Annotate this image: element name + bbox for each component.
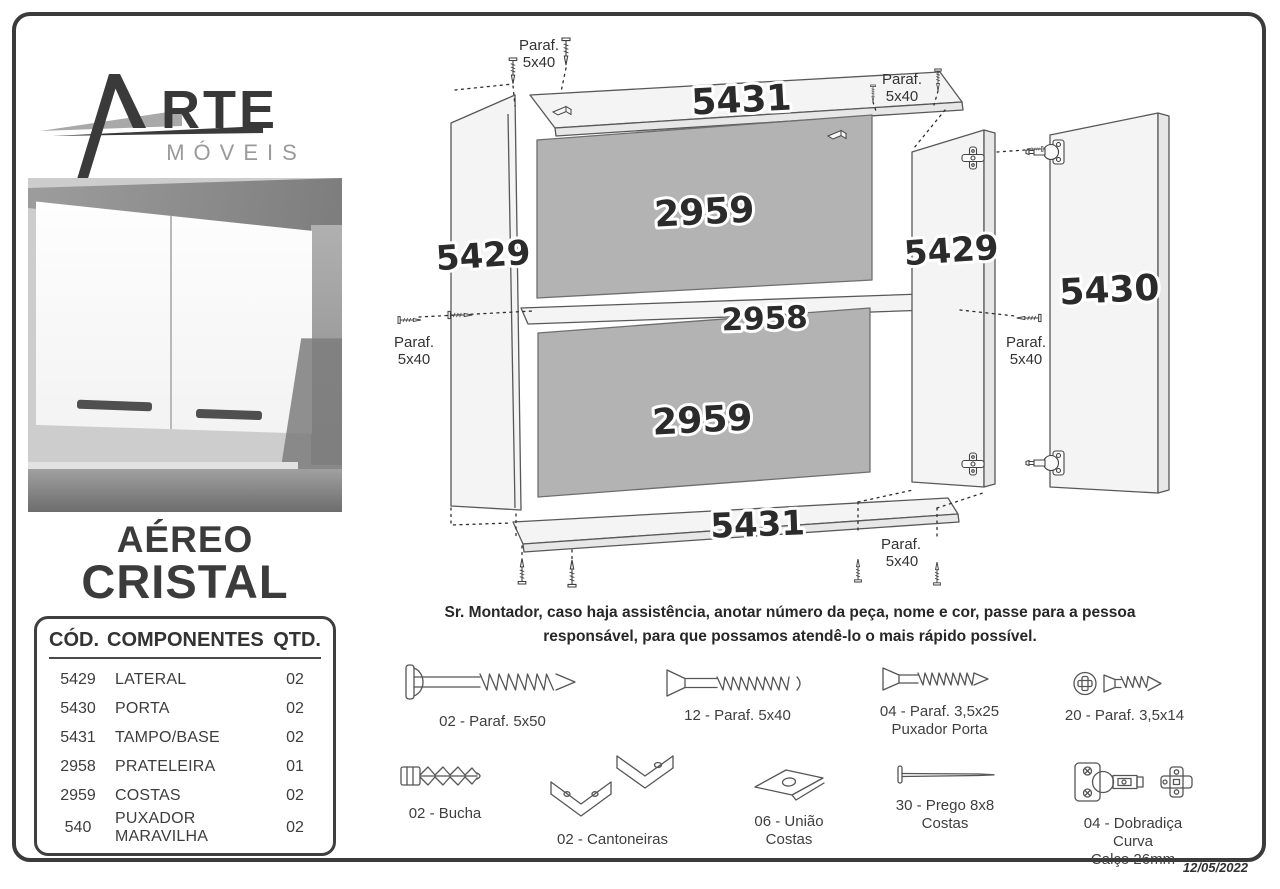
screw-note: 5x40 — [398, 351, 431, 368]
hardware-label-line2: Costas — [890, 815, 1000, 833]
brand-subtitle: MÓVEIS — [166, 140, 306, 165]
brand-wordmark-rest: RTE — [161, 80, 278, 140]
hardware-label-line2: Calço 26mm — [1068, 851, 1198, 869]
components-table-body: 5429 LATERAL 02 5430 PORTA 02 5431 TAMPO… — [49, 659, 321, 839]
hardware-label: 02 - Cantoneiras — [545, 831, 680, 849]
photo-counter — [28, 469, 342, 512]
component-name: PORTA — [107, 700, 269, 718]
hardware-label: 20 - Paraf. 3,5x14 — [1062, 707, 1187, 725]
component-row: 540 PUXADOR MARAVILHA 02 — [49, 810, 321, 839]
component-qty: 02 — [269, 700, 321, 718]
hardware-label: 02 - Bucha — [390, 805, 500, 823]
hardware-item: 20 - Paraf. 3,5x14 — [1062, 670, 1187, 725]
screw-note: 5x40 — [523, 54, 556, 71]
screw-note: 5x40 — [886, 553, 919, 570]
components-table-header: CÓD. COMPONENTES QTD. — [49, 627, 321, 659]
header-code: CÓD. — [49, 629, 107, 652]
part-label-shelf-2958: 2958 — [721, 300, 808, 339]
flat-head-screw-icon — [663, 668, 813, 698]
revision-date: 12/05/2022 — [1183, 860, 1248, 875]
part-label-top-5431: 5431 — [690, 77, 792, 123]
component-code: 5430 — [49, 700, 107, 718]
door-handle-left — [77, 400, 152, 412]
screw-note: Paraf. — [394, 334, 434, 351]
component-code: 2959 — [49, 787, 107, 805]
component-row: 5431 TAMPO/BASE 02 — [49, 723, 321, 752]
hardware-label: 04 - Paraf. 3,5x25 — [862, 703, 1017, 721]
instruction-sheet: RTE MÓVEIS AÉREO CRISTAL CÓD. COMPONENTE… — [0, 0, 1280, 889]
screw-icon — [855, 559, 862, 582]
component-name: PUXADOR MARAVILHA — [107, 810, 269, 846]
component-qty: 01 — [269, 758, 321, 776]
hardware-label: 30 - Prego 8x8 — [890, 797, 1000, 815]
component-row: 5429 LATERAL 02 — [49, 665, 321, 694]
nail-icon — [893, 762, 998, 788]
assembly-note: Sr. Montador, caso haja assistência, ano… — [395, 601, 1185, 649]
component-qty: 02 — [269, 787, 321, 805]
door-hinge-icon — [1026, 140, 1064, 164]
left-side-panel-5429 — [451, 95, 521, 510]
part-label-back-upper-2959: 2959 — [653, 189, 755, 235]
component-qty: 02 — [269, 671, 321, 689]
screw-icon — [398, 317, 421, 324]
screw-note: Paraf. — [881, 536, 921, 553]
component-code: 2958 — [49, 758, 107, 776]
component-name: PRATELEIRA — [107, 758, 269, 776]
component-name: TAMPO/BASE — [107, 729, 269, 747]
screw-note: 5x40 — [886, 88, 919, 105]
screw-icon — [509, 58, 517, 84]
screw-note: Paraf. — [1006, 334, 1046, 351]
hardware-item: 04 - Paraf. 3,5x25 Puxador Porta — [862, 666, 1017, 739]
component-code: 5431 — [49, 729, 107, 747]
component-qty: 02 — [269, 819, 321, 837]
screw-icon — [934, 562, 941, 585]
component-code: 540 — [49, 819, 107, 837]
component-code: 5429 — [49, 671, 107, 689]
door-hinge-icon — [1026, 451, 1064, 475]
assembly-note-line1: Sr. Montador, caso haja assistência, ano… — [395, 601, 1185, 625]
hardware-label: 02 - Paraf. 5x50 — [395, 713, 590, 731]
component-row: 2958 PRATELEIRA 01 — [49, 752, 321, 781]
hardware-label: 06 - União Costas — [733, 813, 845, 849]
part-label-left-5429: 5429 — [435, 233, 532, 280]
hardware-item: 30 - Prego 8x8 Costas — [890, 762, 1000, 833]
hardware-label: 04 - Dobradiça Curva — [1068, 815, 1198, 851]
photo-shelf-ledge — [28, 462, 298, 469]
screw-note: Paraf. — [519, 37, 559, 54]
screw-icon — [1017, 314, 1041, 321]
component-row: 5430 PORTA 02 — [49, 694, 321, 723]
part-label-back-lower-2959: 2959 — [651, 397, 753, 443]
hardware-item: 06 - União Costas — [733, 764, 845, 849]
assembly-note-line2: responsável, para que possamos atendê-lo… — [395, 625, 1185, 649]
screw-icon — [568, 560, 576, 587]
screw-note: 5x40 — [1010, 351, 1043, 368]
corner-brackets-icon — [545, 752, 680, 822]
hardware-label-line2: Puxador Porta — [862, 721, 1017, 739]
product-title: AÉREO CRISTAL — [28, 520, 342, 604]
handle-screw-icon — [880, 666, 1000, 694]
hardware-item: 04 - Dobradiça Curva Calço 26mm — [1068, 758, 1198, 869]
phillips-screw-icon — [1071, 670, 1179, 698]
product-photo — [28, 178, 342, 512]
right-side-panel-5429 — [912, 130, 984, 487]
hinge-icon — [1073, 758, 1193, 806]
screw-note: Paraf. — [882, 71, 922, 88]
cabinet-door-gap — [170, 207, 172, 430]
product-title-line2: CRISTAL — [28, 559, 342, 604]
component-name: LATERAL — [107, 671, 269, 689]
washer-head-screw-icon — [403, 662, 583, 704]
hardware-item: 02 - Cantoneiras — [545, 752, 680, 849]
part-label-right-5429: 5429 — [903, 228, 1000, 275]
header-name: COMPONENTES — [107, 629, 269, 652]
part-label-door-5430: 5430 — [1058, 267, 1160, 313]
header-qty: QTD. — [269, 629, 321, 652]
components-table: CÓD. COMPONENTES QTD. 5429 LATERAL 02 54… — [34, 616, 336, 856]
part-label-bottom-5431: 5431 — [710, 503, 806, 546]
door-handle-right — [196, 409, 263, 420]
component-name: COSTAS — [107, 787, 269, 805]
hardware-item: 02 - Paraf. 5x50 — [395, 662, 590, 731]
component-qty: 02 — [269, 729, 321, 747]
hardware-item: 02 - Bucha — [390, 758, 500, 823]
hardware-label: 12 - Paraf. 5x40 — [650, 707, 825, 725]
back-union-plate-icon — [748, 764, 830, 804]
screw-icon — [562, 38, 570, 65]
right-panel-edge — [984, 130, 995, 487]
component-row: 2959 COSTAS 02 — [49, 781, 321, 810]
hardware-item: 12 - Paraf. 5x40 — [650, 668, 825, 725]
wall-anchor-icon — [399, 758, 491, 796]
product-title-line1: AÉREO — [28, 520, 342, 559]
screw-icon — [518, 558, 526, 584]
exploded-diagram: 5431 5429 2959 2958 2959 5431 5429 5430 … — [385, 22, 1195, 602]
